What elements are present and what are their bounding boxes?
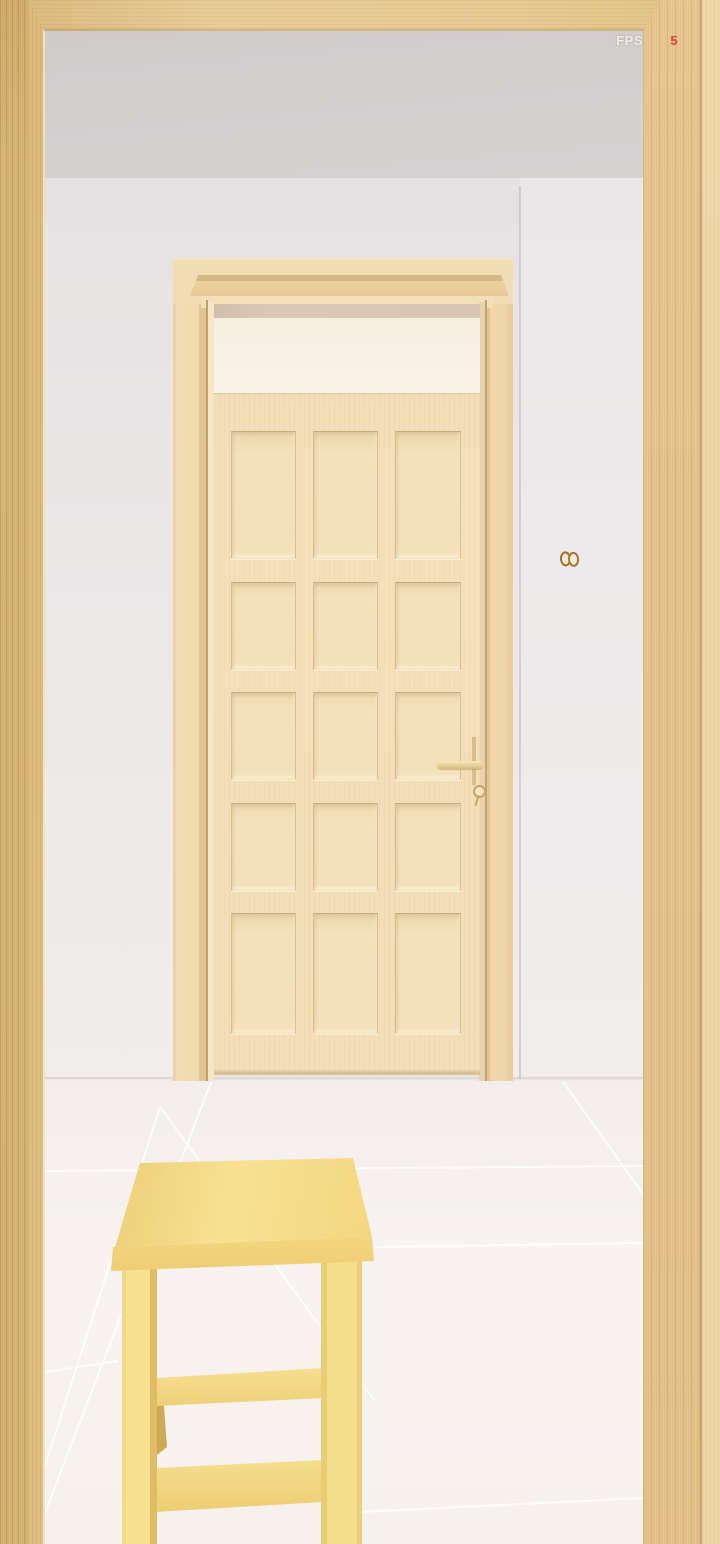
game-viewport: FPS 5 (0, 0, 720, 1544)
door-panel (231, 913, 296, 1034)
door-panel (395, 431, 461, 559)
door-panel-grid (231, 431, 461, 1034)
door-handle-lever[interactable] (437, 761, 483, 769)
stool-seat-top (113, 1156, 375, 1249)
wall-corner-edge (519, 186, 521, 1082)
grout-line (563, 1082, 643, 1194)
door-casing-right (487, 275, 513, 1081)
transom-window (214, 318, 480, 393)
left-pillar-inner-face (28, 0, 45, 1544)
door-slab[interactable] (214, 393, 480, 1075)
left-pillar-front-face (0, 0, 28, 1544)
door-panel (313, 913, 378, 1034)
door-panel (231, 803, 296, 891)
door-casing-cap-molding (190, 275, 509, 296)
stool-front-left-leg (122, 1256, 157, 1544)
ceiling (45, 31, 643, 198)
door-panel (313, 803, 378, 891)
keyhole[interactable] (473, 785, 486, 798)
grout-line (360, 1498, 643, 1512)
right-side-wall (520, 178, 643, 1084)
socket-hole-right (568, 551, 580, 567)
door-panel (395, 913, 461, 1034)
door-panel (231, 431, 296, 559)
door-gap-right (485, 300, 487, 1081)
door-panel (313, 431, 378, 559)
door-panel (395, 582, 461, 670)
grout-line (45, 1361, 118, 1372)
transom-top-reveal (214, 304, 480, 318)
fps-counter-value: 5 (664, 33, 684, 48)
right-pillar-inner-face (643, 0, 700, 1544)
grout-line (375, 1243, 643, 1247)
wall-socket[interactable] (559, 549, 582, 567)
door-panel (231, 692, 296, 780)
door-bottom-shadow (214, 1069, 480, 1076)
door-panel (313, 692, 378, 780)
door-panel (313, 582, 378, 670)
door-casing-left (173, 275, 206, 1081)
door-panel (231, 582, 296, 670)
doorway-top-beam (0, 0, 720, 31)
door-panel (395, 803, 461, 891)
stool-front-right-leg (321, 1248, 362, 1544)
fps-counter-label: FPS (600, 33, 643, 48)
right-pillar-outer-face (700, 0, 720, 1544)
